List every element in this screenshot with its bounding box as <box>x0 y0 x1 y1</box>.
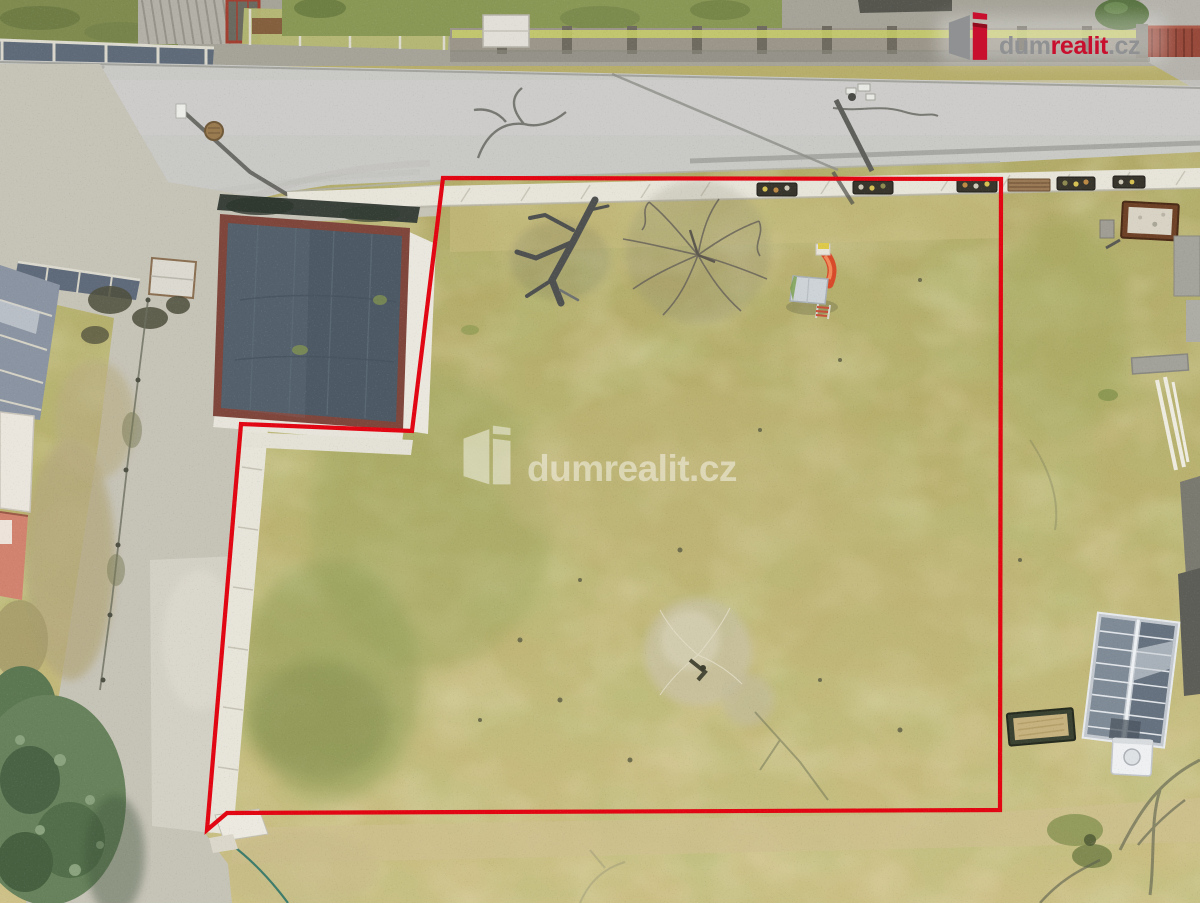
listing-photo: dumrealit.cz dumrealit.cz <box>0 0 1200 903</box>
aerial-photo <box>0 0 1200 903</box>
dumrealit-logo: dumrealit.cz <box>946 6 1140 64</box>
dumrealit-logo-text: dumrealit.cz <box>999 34 1140 64</box>
dumrealit-logo-icon <box>946 8 990 64</box>
film-grain-dark <box>0 0 1200 903</box>
